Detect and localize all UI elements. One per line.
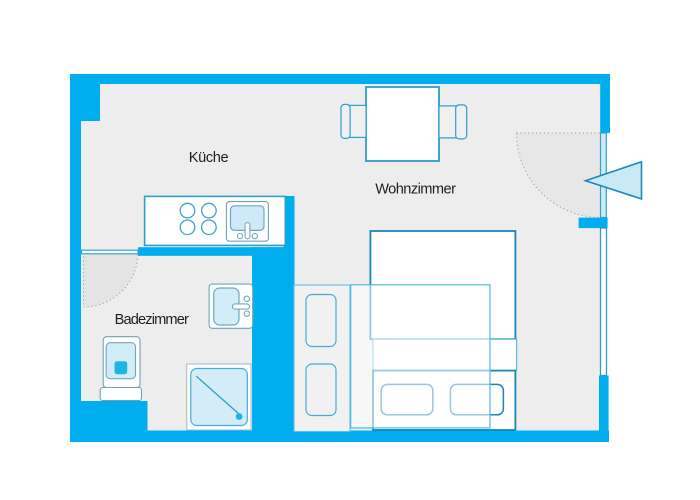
svg-text:Badezimmer: Badezimmer: [115, 312, 189, 328]
svg-text:Wohnzimmer: Wohnzimmer: [375, 182, 456, 198]
svg-text:Küche: Küche: [189, 150, 229, 166]
